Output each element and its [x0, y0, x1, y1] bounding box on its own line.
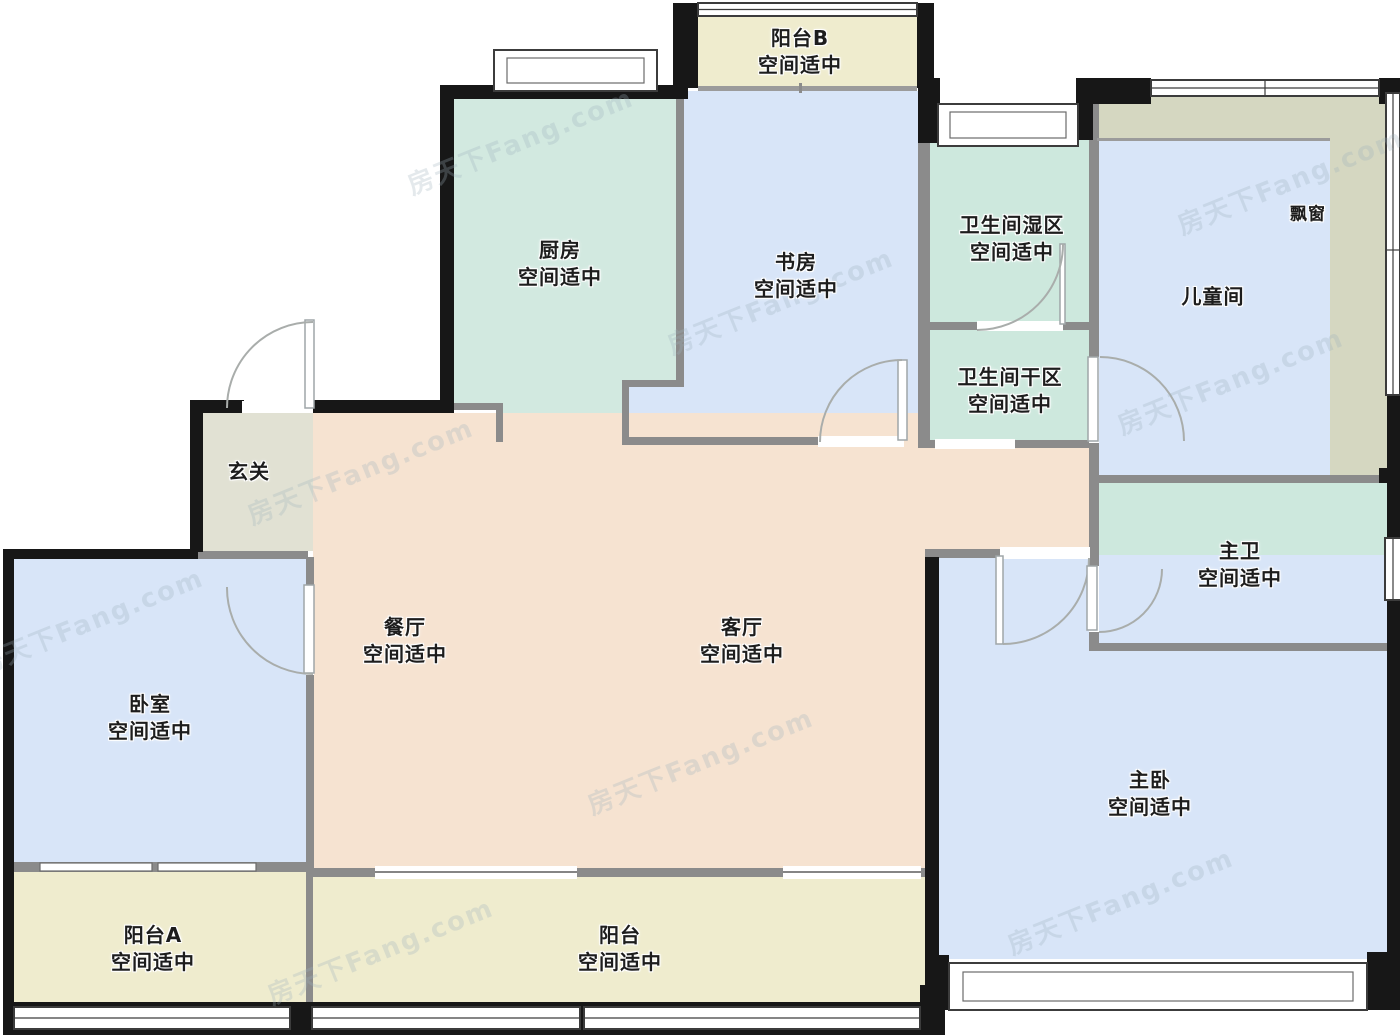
room-label-master-bedroom: 主卧 空间适中 [1108, 767, 1192, 821]
bath-dry-opening [935, 439, 1015, 449]
room-name: 主卧 [1129, 767, 1171, 794]
room-name: 阳台A [124, 922, 182, 949]
room-label-bay-window: 飘窗 [1290, 204, 1326, 227]
room-label-kids-room: 儿童间 [1182, 284, 1245, 311]
room-status: 空间适中 [578, 949, 662, 976]
room-label-study: 书房 空间适中 [754, 249, 838, 303]
kids-room-door-icon [1088, 357, 1098, 441]
bedroom-door-icon [304, 585, 314, 673]
room-name: 阳台B [771, 25, 829, 52]
room-label-bath-wet: 卫生间湿区 空间适中 [960, 212, 1065, 266]
floor-plan: 房天下Fang.com 房天下Fang.com 房天下Fang.com 房天下F… [0, 0, 1400, 1035]
master-bedroom-area [939, 555, 1387, 959]
entry-door-icon [305, 320, 314, 408]
bedroom-balcony-window-icon [40, 863, 152, 871]
room-status: 空间适中 [700, 641, 784, 668]
room-status: 空间适中 [363, 641, 447, 668]
room-label-kitchen: 厨房 空间适中 [518, 237, 602, 291]
room-label-bedroom: 卧室 空间适中 [108, 691, 192, 745]
room-status: 空间适中 [970, 239, 1054, 266]
room-name: 厨房 [539, 237, 581, 264]
study-area [684, 91, 918, 384]
room-label-bath-dry: 卫生间干区 空间适中 [958, 364, 1063, 418]
room-label-balcony-a: 阳台A 空间适中 [111, 922, 195, 976]
room-status: 空间适中 [1108, 794, 1192, 821]
room-name: 阳台 [599, 922, 641, 949]
room-name: 餐厅 [384, 614, 426, 641]
room-label-entry-hall: 玄关 [228, 459, 270, 486]
room-label-master-bath: 主卫 空间适中 [1198, 538, 1282, 592]
room-name: 卫生间干区 [958, 364, 1063, 391]
room-status: 空间适中 [1198, 565, 1282, 592]
room-status: 空间适中 [758, 52, 842, 79]
master-bedroom-door-icon [996, 556, 1003, 644]
room-name: 客厅 [721, 614, 763, 641]
study-door-icon [898, 360, 907, 440]
floor-plan-drawing [0, 0, 1400, 1035]
room-name: 卫生间湿区 [960, 212, 1065, 239]
room-label-dining-room: 餐厅 空间适中 [363, 614, 447, 668]
room-name: 书房 [775, 249, 817, 276]
room-name: 飘窗 [1290, 204, 1326, 227]
master-bath-door-icon [1087, 566, 1097, 630]
room-label-living-room: 客厅 空间适中 [700, 614, 784, 668]
room-name: 儿童间 [1182, 284, 1245, 311]
room-status: 空间适中 [518, 264, 602, 291]
room-status: 空间适中 [754, 276, 838, 303]
room-label-balcony: 阳台 空间适中 [578, 922, 662, 976]
room-label-balcony-b: 阳台B 空间适中 [758, 25, 842, 79]
hallway-area [925, 443, 1089, 557]
room-name: 主卫 [1219, 538, 1261, 565]
room-status: 空间适中 [968, 391, 1052, 418]
room-name: 卧室 [129, 691, 171, 718]
room-status: 空间适中 [111, 949, 195, 976]
room-status: 空间适中 [108, 718, 192, 745]
room-name: 玄关 [228, 459, 270, 486]
